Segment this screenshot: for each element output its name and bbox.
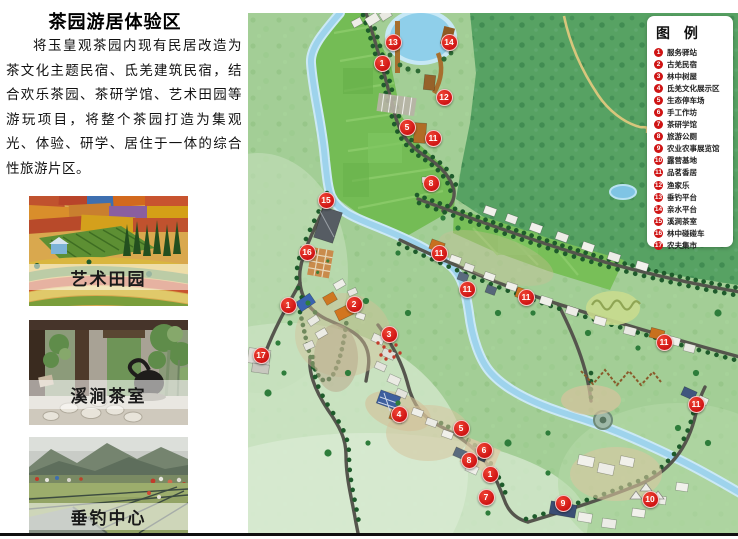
tree bbox=[324, 449, 331, 456]
legend-item-label: 农业农事展览馆 bbox=[667, 143, 720, 154]
legend-item: 10露营基地 bbox=[654, 155, 733, 167]
legend-item-number: 15 bbox=[654, 217, 663, 226]
red-bush bbox=[394, 343, 397, 346]
red-bush bbox=[379, 353, 382, 356]
legend-item: 5生态停车场 bbox=[654, 94, 733, 106]
legend-item-label: 氐羌文化展示区 bbox=[667, 83, 720, 94]
map-marker: 11 bbox=[425, 130, 442, 147]
legend-item-label: 露营基地 bbox=[667, 155, 697, 166]
page: 茶园游居体验区 将玉皇观茶园内现有民居改造为茶文化主题民宿、氐羌建筑民宿，结合欢… bbox=[0, 0, 738, 539]
map-marker: 2 bbox=[346, 296, 363, 313]
legend-item-label: 品茗香居 bbox=[667, 167, 697, 178]
map-marker: 5 bbox=[399, 119, 416, 136]
map-marker: 6 bbox=[476, 442, 493, 459]
tree bbox=[395, 250, 400, 255]
photo-caption-band: 艺术田园 bbox=[29, 264, 188, 290]
legend-item-number: 14 bbox=[654, 205, 663, 214]
legend-item: 3林中树屋 bbox=[654, 70, 733, 82]
red-bush bbox=[388, 349, 391, 352]
legend-item: 9农业农事展览馆 bbox=[654, 143, 733, 155]
legend-item: 11品茗香居 bbox=[654, 167, 733, 179]
tree bbox=[714, 309, 721, 316]
legend-item-label: 渔家乐 bbox=[667, 180, 690, 191]
tree bbox=[705, 440, 711, 446]
map-marker: 16 bbox=[299, 244, 316, 261]
building bbox=[251, 363, 269, 374]
map-marker: 17 bbox=[253, 347, 270, 364]
map-marker: 3 bbox=[381, 326, 398, 343]
tree bbox=[345, 370, 351, 376]
map-marker: 1 bbox=[280, 297, 297, 314]
legend-panel: 图 例 1服务驿站2古羌民宿3林中树屋4氐羌文化展示区5生态停车场6手工作坊7茶… bbox=[647, 16, 733, 247]
red-bush bbox=[384, 357, 387, 360]
photo-art-field: 艺术田园 bbox=[29, 196, 188, 306]
small-pond bbox=[610, 185, 636, 199]
legend-item-number: 8 bbox=[654, 132, 663, 141]
legend-item-label: 生态停车场 bbox=[667, 95, 705, 106]
legend-item-number: 16 bbox=[654, 229, 663, 238]
legend-item: 13垂钓平台 bbox=[654, 191, 733, 203]
building bbox=[423, 74, 436, 90]
legend-item-number: 2 bbox=[654, 60, 663, 69]
legend-item-label: 亲水平台 bbox=[667, 204, 697, 215]
map-marker: 11 bbox=[656, 334, 673, 351]
building bbox=[601, 518, 616, 529]
bottom-rule bbox=[0, 533, 738, 536]
legend-item-label: 林中碰碰车 bbox=[667, 228, 705, 239]
legend-item-label: 茶研学馆 bbox=[667, 119, 697, 130]
legend-item-number: 17 bbox=[654, 241, 663, 250]
legend-item: 1服务驿站 bbox=[654, 46, 733, 58]
legend-item-number: 10 bbox=[654, 156, 663, 165]
tree bbox=[504, 439, 511, 446]
legend-item: 15溪涧茶室 bbox=[654, 215, 733, 227]
photo-caption-band: 溪涧茶室 bbox=[29, 380, 188, 409]
legend-item-number: 13 bbox=[654, 193, 663, 202]
legend-item-label: 旅游公厕 bbox=[667, 131, 697, 142]
map-marker: 5 bbox=[453, 420, 470, 437]
map-marker: 11 bbox=[518, 289, 535, 306]
map-marker: 9 bbox=[555, 495, 572, 512]
photo-caption: 艺术田园 bbox=[71, 265, 147, 290]
tree bbox=[275, 340, 280, 345]
tea-room-illustration bbox=[29, 320, 188, 425]
tree bbox=[635, 345, 640, 350]
tree bbox=[365, 440, 370, 445]
map-marker: 10 bbox=[642, 491, 659, 508]
tree bbox=[440, 215, 445, 220]
legend-item-label: 古羌民宿 bbox=[667, 59, 697, 70]
legend-item-number: 11 bbox=[654, 168, 663, 177]
photo-fishing-center: 垂钓中心 bbox=[29, 437, 188, 533]
legend-item-number: 9 bbox=[654, 144, 663, 153]
photo-tea-room: 溪涧茶室 bbox=[29, 320, 188, 425]
tree bbox=[287, 320, 292, 325]
legend-item: 2古羌民宿 bbox=[654, 58, 733, 70]
legend-title: 图 例 bbox=[656, 23, 733, 43]
map-marker: 4 bbox=[391, 406, 408, 423]
page-title: 茶园游居体验区 bbox=[0, 8, 230, 34]
legend-item-label: 服务驿站 bbox=[667, 47, 697, 58]
tree bbox=[363, 298, 369, 304]
tree bbox=[693, 370, 699, 376]
map-marker: 13 bbox=[385, 34, 402, 51]
tree bbox=[264, 389, 271, 396]
map-marker: 8 bbox=[461, 452, 478, 469]
building bbox=[632, 508, 646, 518]
photo-caption: 垂钓中心 bbox=[71, 504, 147, 529]
map-marker: 1 bbox=[482, 466, 499, 483]
tree bbox=[485, 510, 490, 515]
legend-item-label: 溪涧茶室 bbox=[667, 216, 697, 227]
legend-item: 17农夫集市 bbox=[654, 240, 733, 252]
legend-item: 8旅游公厕 bbox=[654, 131, 733, 143]
map-marker: 14 bbox=[441, 34, 458, 51]
legend-item-label: 垂钓平台 bbox=[667, 192, 697, 203]
photo-caption-band: 垂钓中心 bbox=[29, 503, 188, 530]
legend-item-number: 3 bbox=[654, 72, 663, 81]
map-marker: 11 bbox=[431, 245, 448, 262]
photo-caption: 溪涧茶室 bbox=[71, 382, 147, 407]
map-marker: 12 bbox=[436, 89, 453, 106]
tree bbox=[395, 400, 400, 405]
legend-item: 7茶研学馆 bbox=[654, 119, 733, 131]
legend-item-label: 手工作坊 bbox=[667, 107, 697, 118]
map-marker: 11 bbox=[688, 396, 705, 413]
tree bbox=[281, 370, 286, 375]
legend-item-label: 林中树屋 bbox=[667, 71, 697, 82]
red-bush bbox=[398, 351, 401, 354]
map-marker: 15 bbox=[318, 192, 335, 209]
tree bbox=[545, 430, 550, 435]
legend-item-number: 12 bbox=[654, 181, 663, 190]
tree bbox=[585, 330, 591, 336]
legend-item-number: 1 bbox=[654, 48, 663, 57]
building bbox=[676, 482, 689, 492]
legend-item: 6手工作坊 bbox=[654, 106, 733, 118]
map-marker: 8 bbox=[423, 175, 440, 192]
map-marker: 11 bbox=[459, 281, 476, 298]
legend-item: 12渔家乐 bbox=[654, 179, 733, 191]
intro-paragraph: 将玉皇观茶园内现有民居改造为茶文化主题民宿、氐羌建筑民宿，结合欢乐茶园、茶研学馆… bbox=[6, 34, 242, 181]
tree bbox=[305, 300, 310, 305]
legend-item: 4氐羌文化展示区 bbox=[654, 82, 733, 94]
tree bbox=[495, 310, 501, 316]
legend-item-label: 农夫集市 bbox=[667, 240, 697, 251]
legend-item-number: 4 bbox=[654, 84, 663, 93]
map-illustration: 131411251181516111111213111711456817910 … bbox=[248, 13, 738, 533]
legend-item: 14亲水平台 bbox=[654, 203, 733, 215]
map-marker: 1 bbox=[374, 55, 391, 72]
tree bbox=[455, 225, 460, 230]
tree bbox=[545, 470, 550, 475]
tree bbox=[405, 310, 411, 316]
red-bush bbox=[382, 345, 385, 348]
legend-item-number: 7 bbox=[654, 120, 663, 129]
legend-item-number: 5 bbox=[654, 96, 663, 105]
tree bbox=[675, 425, 681, 431]
tree bbox=[530, 310, 535, 315]
legend-item: 16林中碰碰车 bbox=[654, 227, 733, 239]
legend-rows: 1服务驿站2古羌民宿3林中树屋4氐羌文化展示区5生态停车场6手工作坊7茶研学馆8… bbox=[654, 46, 733, 252]
left-panel: 茶园游居体验区 将玉皇观茶园内现有民居改造为茶文化主题民宿、氐羌建筑民宿，结合欢… bbox=[0, 0, 248, 539]
legend-item-number: 6 bbox=[654, 108, 663, 117]
red-bush bbox=[376, 341, 379, 344]
red-bush bbox=[392, 355, 395, 358]
map-marker: 7 bbox=[478, 489, 495, 506]
